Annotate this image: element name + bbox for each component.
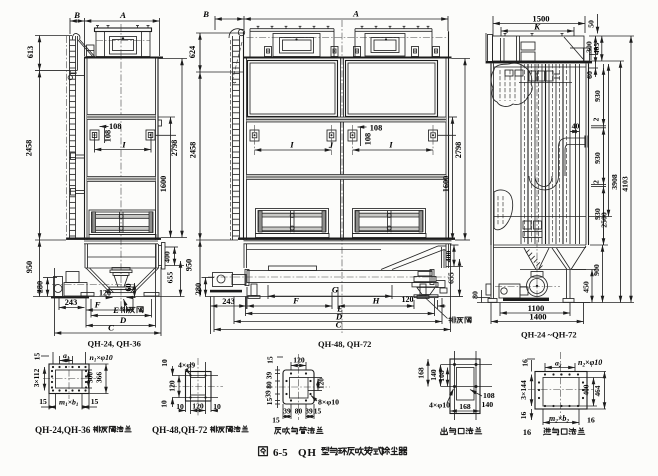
svg-text:108: 108: [437, 370, 446, 382]
svg-text:QH-48, QH-72: QH-48, QH-72: [318, 339, 371, 349]
svg-text:120: 120: [99, 289, 111, 298]
svg-text:168: 168: [417, 367, 426, 379]
svg-text:39: 39: [265, 372, 274, 380]
svg-text:60: 60: [124, 284, 133, 292]
svg-text:3908: 3908: [610, 174, 619, 190]
svg-text:39: 39: [283, 407, 291, 416]
svg-text:120: 120: [168, 380, 177, 392]
svg-text:QH-24, QH-36: QH-24, QH-36: [88, 339, 141, 349]
svg-text:C: C: [108, 323, 114, 333]
svg-text:C: C: [336, 319, 342, 329]
svg-text:168: 168: [459, 402, 471, 411]
svg-text:1600: 1600: [159, 176, 168, 193]
svg-text:464: 464: [593, 385, 602, 396]
svg-text:80: 80: [265, 381, 274, 389]
svg-text:15: 15: [314, 407, 322, 416]
svg-text:10: 10: [176, 402, 184, 411]
svg-text:930: 930: [593, 152, 602, 164]
svg-text:120: 120: [317, 378, 326, 389]
svg-text:39: 39: [305, 407, 313, 416]
svg-text:450: 450: [582, 281, 591, 293]
svg-text:3×112: 3×112: [32, 368, 41, 387]
svg-text:60: 60: [585, 71, 594, 79]
svg-text:655: 655: [166, 272, 175, 284]
svg-text:405: 405: [592, 43, 601, 55]
svg-text:655: 655: [447, 272, 456, 284]
svg-text:QH-48,QH-72: QH-48,QH-72: [152, 425, 208, 435]
svg-text:3×144: 3×144: [519, 380, 528, 400]
svg-text:280: 280: [36, 281, 45, 293]
svg-text:F: F: [94, 300, 101, 310]
svg-text:50: 50: [587, 20, 596, 28]
svg-text:15: 15: [272, 416, 280, 425]
svg-text:300: 300: [86, 372, 95, 383]
svg-text:G: G: [332, 285, 339, 295]
svg-text:4×φ9: 4×φ9: [178, 361, 195, 370]
svg-text:4×φ10: 4×φ10: [429, 401, 450, 410]
svg-text:1600: 1600: [442, 176, 451, 193]
svg-text:J: J: [328, 140, 334, 150]
svg-text:108: 108: [370, 124, 382, 133]
svg-text:950: 950: [185, 259, 194, 271]
svg-text:H: H: [372, 296, 381, 306]
svg-text:930: 930: [593, 90, 602, 102]
svg-text:A: A: [119, 10, 126, 20]
svg-text:I: I: [289, 140, 294, 150]
svg-text:2458: 2458: [25, 140, 34, 157]
svg-text:243: 243: [222, 297, 234, 306]
svg-text:400: 400: [163, 251, 172, 263]
svg-text:120: 120: [402, 295, 414, 304]
svg-text:16: 16: [523, 428, 531, 437]
svg-text:2: 2: [592, 180, 601, 184]
svg-text:16: 16: [521, 359, 530, 367]
svg-text:16: 16: [587, 416, 595, 425]
svg-text:120: 120: [293, 356, 305, 365]
svg-text:A: A: [352, 9, 359, 19]
svg-text:366: 366: [95, 372, 104, 383]
svg-text:15: 15: [266, 356, 275, 364]
svg-text:K: K: [533, 22, 541, 32]
svg-text:108: 108: [483, 391, 495, 400]
svg-text:108: 108: [364, 133, 373, 145]
svg-text:m1×b1: m1×b1: [59, 398, 78, 409]
svg-text:15: 15: [33, 353, 42, 361]
svg-text:15: 15: [91, 397, 99, 406]
svg-text:10: 10: [213, 402, 221, 411]
svg-text:950: 950: [25, 261, 34, 273]
svg-text:2500: 2500: [600, 212, 609, 228]
svg-text:D: D: [119, 315, 127, 325]
svg-text:2: 2: [592, 117, 601, 121]
svg-text:120: 120: [192, 402, 204, 411]
svg-text:613: 613: [26, 46, 35, 58]
svg-text:m2×b2: m2×b2: [549, 414, 569, 425]
svg-text:280: 280: [194, 283, 203, 295]
svg-text:B: B: [202, 9, 209, 19]
svg-text:I: I: [121, 140, 126, 150]
svg-text:15: 15: [39, 397, 47, 406]
svg-text:QH-24 ~QH-72: QH-24 ~QH-72: [521, 330, 577, 340]
svg-text:8×φ10: 8×φ10: [318, 398, 339, 407]
svg-text:E: E: [112, 305, 119, 315]
svg-text:QH-24,QH-36: QH-24,QH-36: [35, 425, 91, 435]
svg-text:140: 140: [482, 400, 494, 409]
svg-text:39: 39: [264, 390, 273, 398]
svg-text:4103: 4103: [621, 176, 630, 192]
svg-text:400: 400: [444, 251, 453, 263]
svg-text:1400: 1400: [529, 311, 546, 321]
svg-text:I: I: [388, 140, 393, 150]
svg-text:2798: 2798: [454, 142, 463, 159]
svg-text:624: 624: [188, 46, 197, 58]
svg-text:n1×φ10: n1×φ10: [90, 353, 113, 364]
svg-text:108: 108: [104, 130, 113, 142]
svg-text:40: 40: [572, 122, 580, 131]
svg-text:400: 400: [582, 384, 591, 395]
svg-text:15: 15: [265, 398, 274, 406]
svg-text:10: 10: [160, 359, 169, 367]
svg-text:900: 900: [592, 264, 601, 276]
svg-text:2798: 2798: [170, 140, 179, 157]
svg-text:10: 10: [160, 400, 169, 408]
svg-text:B: B: [73, 10, 80, 20]
svg-text:2458: 2458: [189, 142, 198, 159]
svg-text:16: 16: [519, 412, 528, 420]
svg-text:243: 243: [65, 298, 77, 307]
svg-text:80: 80: [295, 407, 303, 416]
svg-text:6-5: 6-5: [273, 447, 288, 459]
svg-text:F: F: [292, 296, 299, 306]
svg-text:QH: QH: [298, 447, 317, 459]
